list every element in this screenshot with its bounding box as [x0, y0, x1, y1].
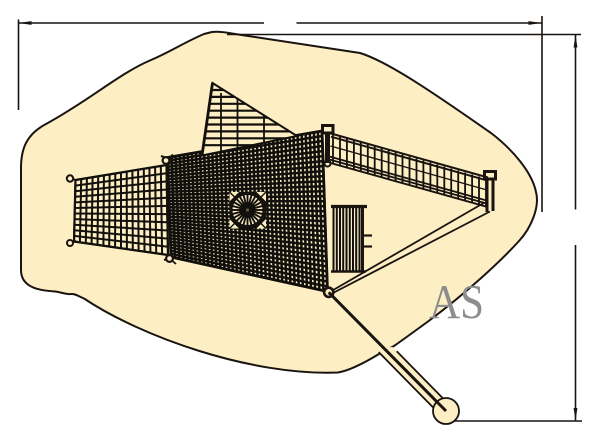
- svg-text:AS: AS: [429, 274, 484, 329]
